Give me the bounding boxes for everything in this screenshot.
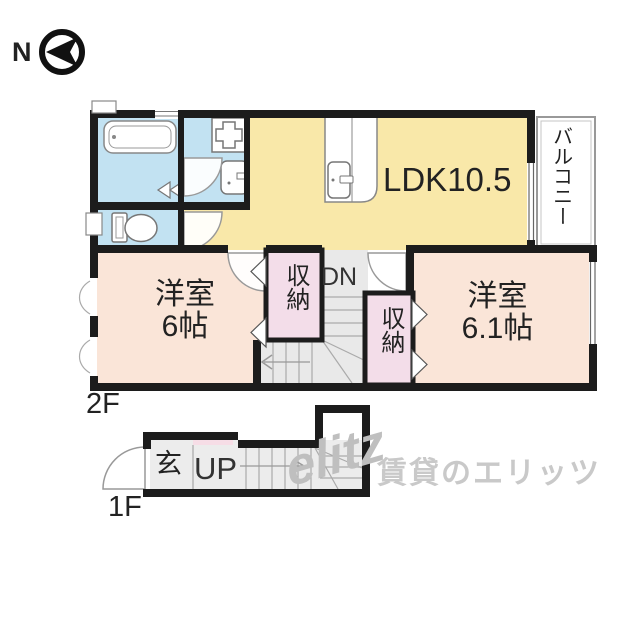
bedroom-right-label: 洋室 6.1帖 (415, 281, 580, 346)
ldk-label: LDK10.5 (383, 162, 511, 198)
floor2-label: 2F (86, 389, 120, 420)
floor1-label: 1F (108, 492, 142, 523)
toilet-window (86, 213, 102, 235)
closet-right-label: 収納 (377, 306, 403, 354)
kitchen-counter-icon (325, 116, 377, 202)
closet-left-label: 収納 (282, 263, 308, 311)
bedroom-right-door-swing (368, 253, 406, 291)
washing-machine-pan-icon (212, 118, 246, 152)
floor-plan-page: N LDK10.5 バルコニー 洋室 6帖 洋室 6.1帖 収納 収納 DN 2… (0, 0, 640, 640)
balcony-label: バルコニー (549, 126, 571, 226)
watermark-text: 賃貸のエリッツ (377, 458, 601, 490)
stairs-down-label: DN (321, 264, 357, 291)
entrance-door-swing (103, 447, 145, 489)
entrance-label: 玄 (155, 450, 182, 479)
washbasin-icon (221, 161, 248, 194)
toilet-icon (112, 213, 157, 242)
bedroom-left-label: 洋室 6帖 (115, 279, 255, 344)
bathtub-icon (104, 121, 176, 153)
stairs-up-label: UP (194, 452, 237, 485)
bath-corner-window (92, 101, 116, 113)
left-wall-window-swings (80, 281, 91, 373)
north-arrow-icon (42, 32, 82, 72)
north-label: N (12, 38, 32, 67)
